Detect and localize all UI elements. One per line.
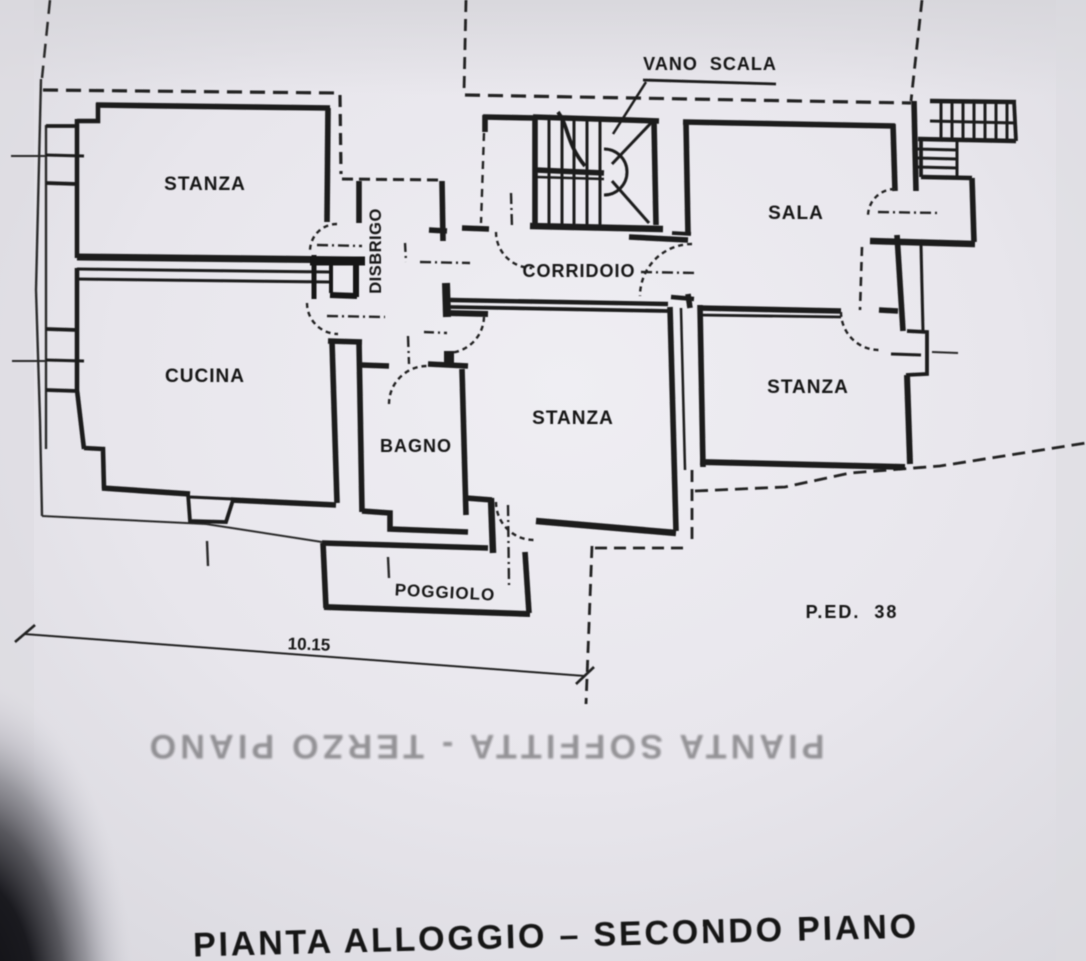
- svg-text:VANO SCALA: VANO SCALA: [643, 54, 777, 74]
- svg-text:10.15: 10.15: [287, 634, 330, 654]
- svg-text:CUCINA: CUCINA: [165, 366, 245, 387]
- svg-text:STANZA: STANZA: [767, 377, 849, 398]
- svg-text:STANZA: STANZA: [164, 174, 246, 195]
- svg-text:BAGNO: BAGNO: [380, 436, 452, 456]
- svg-text:STANZA: STANZA: [532, 408, 614, 429]
- svg-text:CORRIDOIO: CORRIDOIO: [522, 261, 635, 281]
- svg-text:DISBRIGO: DISBRIGO: [367, 208, 385, 294]
- svg-text:P.ED. 38: P.ED. 38: [806, 602, 899, 622]
- svg-text:PIANTA SOFFITTA - TERZO PIANO: PIANTA SOFFITTA - TERZO PIANO: [146, 727, 825, 765]
- svg-text:SALA: SALA: [768, 203, 824, 224]
